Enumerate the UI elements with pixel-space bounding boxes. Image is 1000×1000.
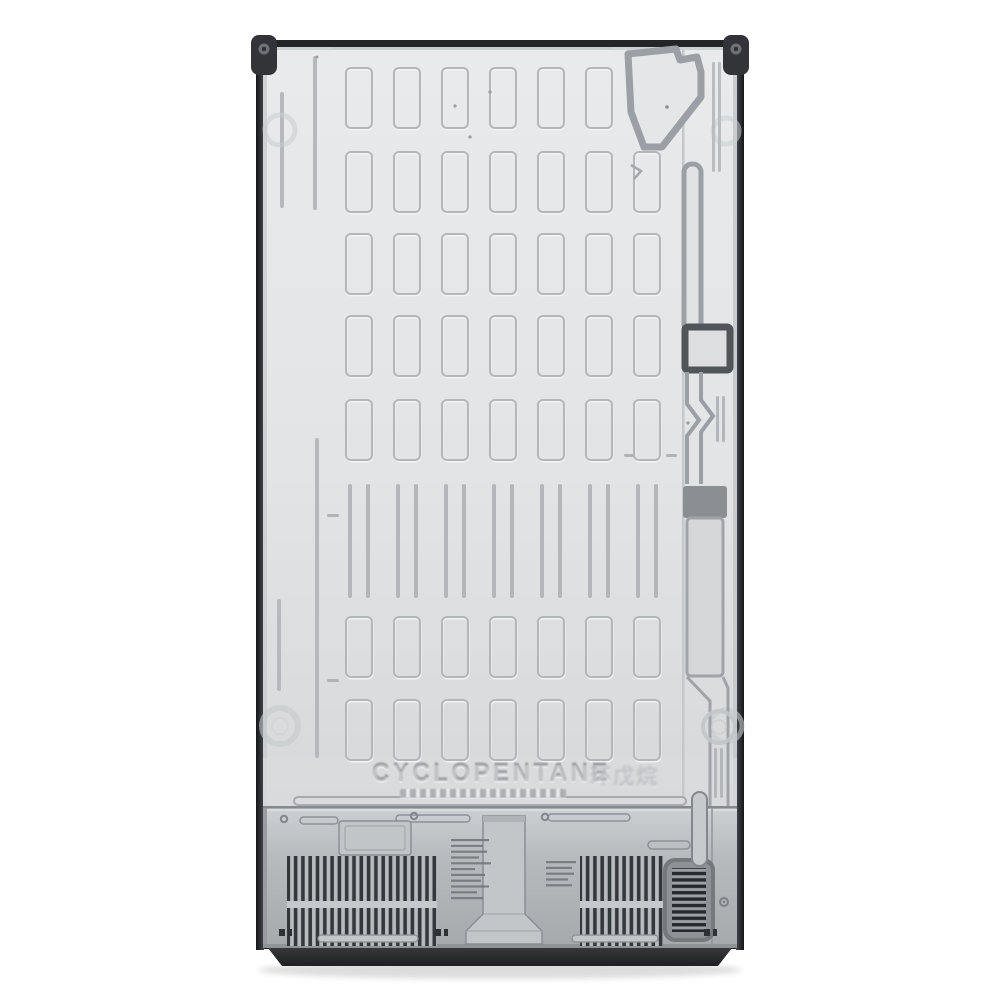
corner-bracket-right bbox=[723, 35, 749, 75]
fridge-back-illustration bbox=[0, 0, 1000, 1000]
back-panel bbox=[263, 47, 737, 806]
square-cutout bbox=[685, 327, 730, 370]
vent-grille-left bbox=[287, 856, 437, 946]
compressor-cover bbox=[263, 792, 737, 948]
base-plinth bbox=[263, 946, 737, 966]
cyclopentane-emboss-text-cn: 环戊烷 bbox=[590, 761, 660, 791]
emboss-subtext bbox=[400, 789, 566, 797]
cyclopentane-emboss-text: CYCLOPENTANE bbox=[372, 759, 588, 788]
corner-bracket-left bbox=[251, 35, 277, 75]
cover-plate bbox=[339, 821, 411, 855]
product-photo: CYCLOPENTANE 环戊烷 bbox=[0, 0, 1000, 1000]
vent-grille-right bbox=[580, 856, 663, 946]
emboss-strip bbox=[294, 797, 686, 805]
